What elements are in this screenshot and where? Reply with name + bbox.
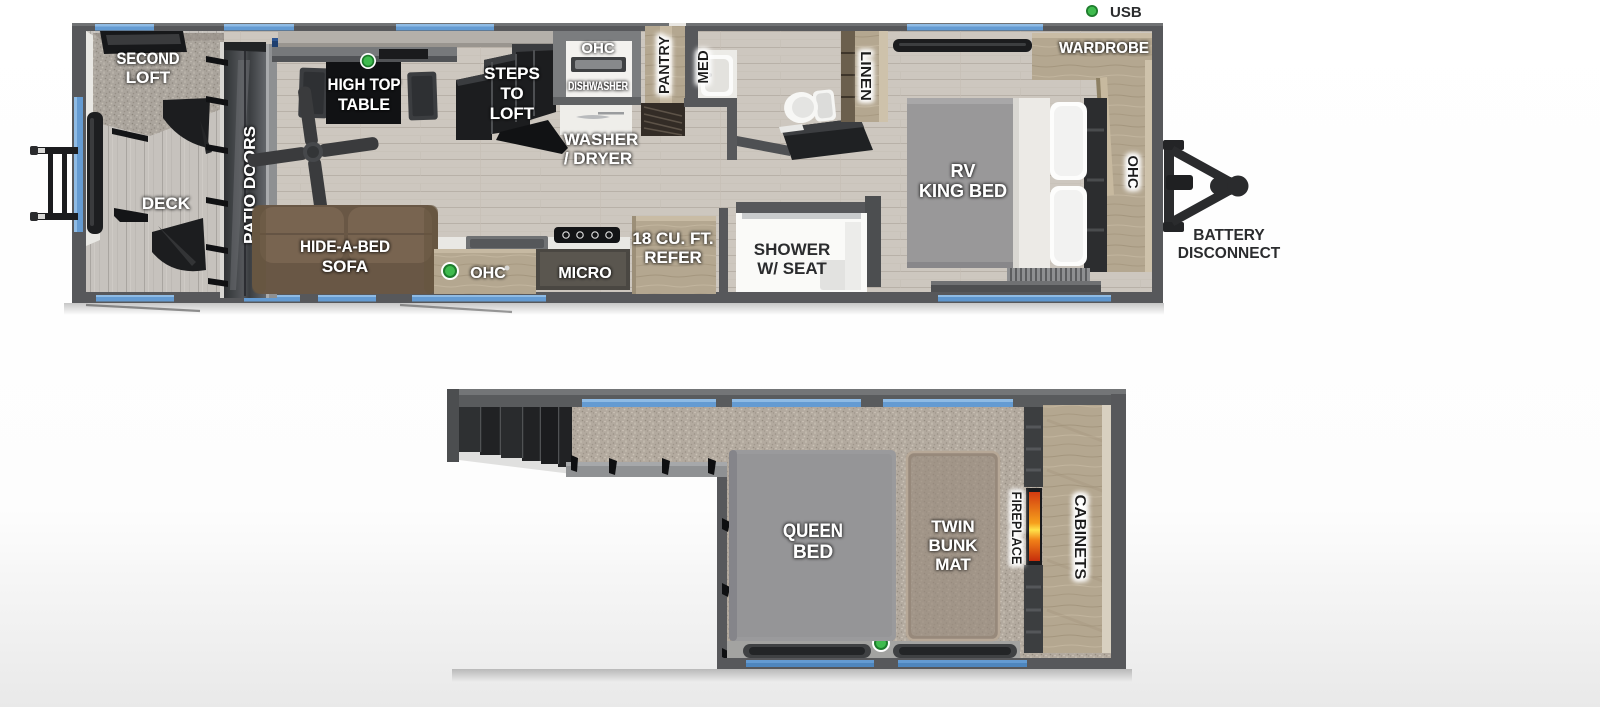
svg-text:MED: MED <box>695 50 712 84</box>
svg-text:TO: TO <box>500 84 523 103</box>
svg-text:TWIN: TWIN <box>931 517 974 536</box>
svg-text:LOFT: LOFT <box>490 104 535 123</box>
svg-text:TABLE: TABLE <box>338 95 390 114</box>
svg-text:/ DRYER: / DRYER <box>564 149 632 168</box>
svg-text:WASHER: WASHER <box>564 130 639 149</box>
svg-text:DISHWASHER: DISHWASHER <box>568 81 629 93</box>
svg-text:STEPS: STEPS <box>484 64 540 83</box>
svg-text:BATTERY: BATTERY <box>1193 227 1265 244</box>
svg-text:W/ SEAT: W/ SEAT <box>757 259 827 278</box>
svg-text:HIGH TOP: HIGH TOP <box>328 75 401 94</box>
svg-text:PANTRY: PANTRY <box>656 36 673 94</box>
svg-text:OHC: OHC <box>1124 155 1141 189</box>
svg-text:LOFT: LOFT <box>126 68 171 87</box>
svg-text:DECK: DECK <box>142 194 191 213</box>
svg-text:USB: USB <box>1110 4 1142 21</box>
svg-text:MAT: MAT <box>935 555 971 574</box>
svg-text:REFER: REFER <box>644 248 702 267</box>
svg-text:MICRO: MICRO <box>558 265 611 282</box>
svg-text:BED: BED <box>793 542 833 563</box>
svg-text:CABINETS: CABINETS <box>1071 495 1088 580</box>
svg-text:SOFA: SOFA <box>322 257 368 276</box>
svg-text:OHC: OHC <box>581 40 615 57</box>
svg-text:FIREPLACE: FIREPLACE <box>1009 492 1024 565</box>
svg-text:LINEN: LINEN <box>857 51 874 101</box>
svg-text:DISCONNECT: DISCONNECT <box>1178 245 1281 262</box>
svg-text:BUNK: BUNK <box>928 536 978 555</box>
svg-text:OHC: OHC <box>470 265 506 282</box>
svg-text:WARDROBE: WARDROBE <box>1059 40 1149 57</box>
svg-text:HIDE-A-BED: HIDE-A-BED <box>300 237 390 256</box>
svg-text:SECOND: SECOND <box>117 49 180 68</box>
svg-text:18 CU. FT.: 18 CU. FT. <box>632 229 713 248</box>
svg-text:RV: RV <box>951 161 976 181</box>
svg-text:QUEEN: QUEEN <box>783 521 843 542</box>
svg-text:KING BED: KING BED <box>919 181 1007 201</box>
svg-text:SHOWER: SHOWER <box>754 240 831 259</box>
